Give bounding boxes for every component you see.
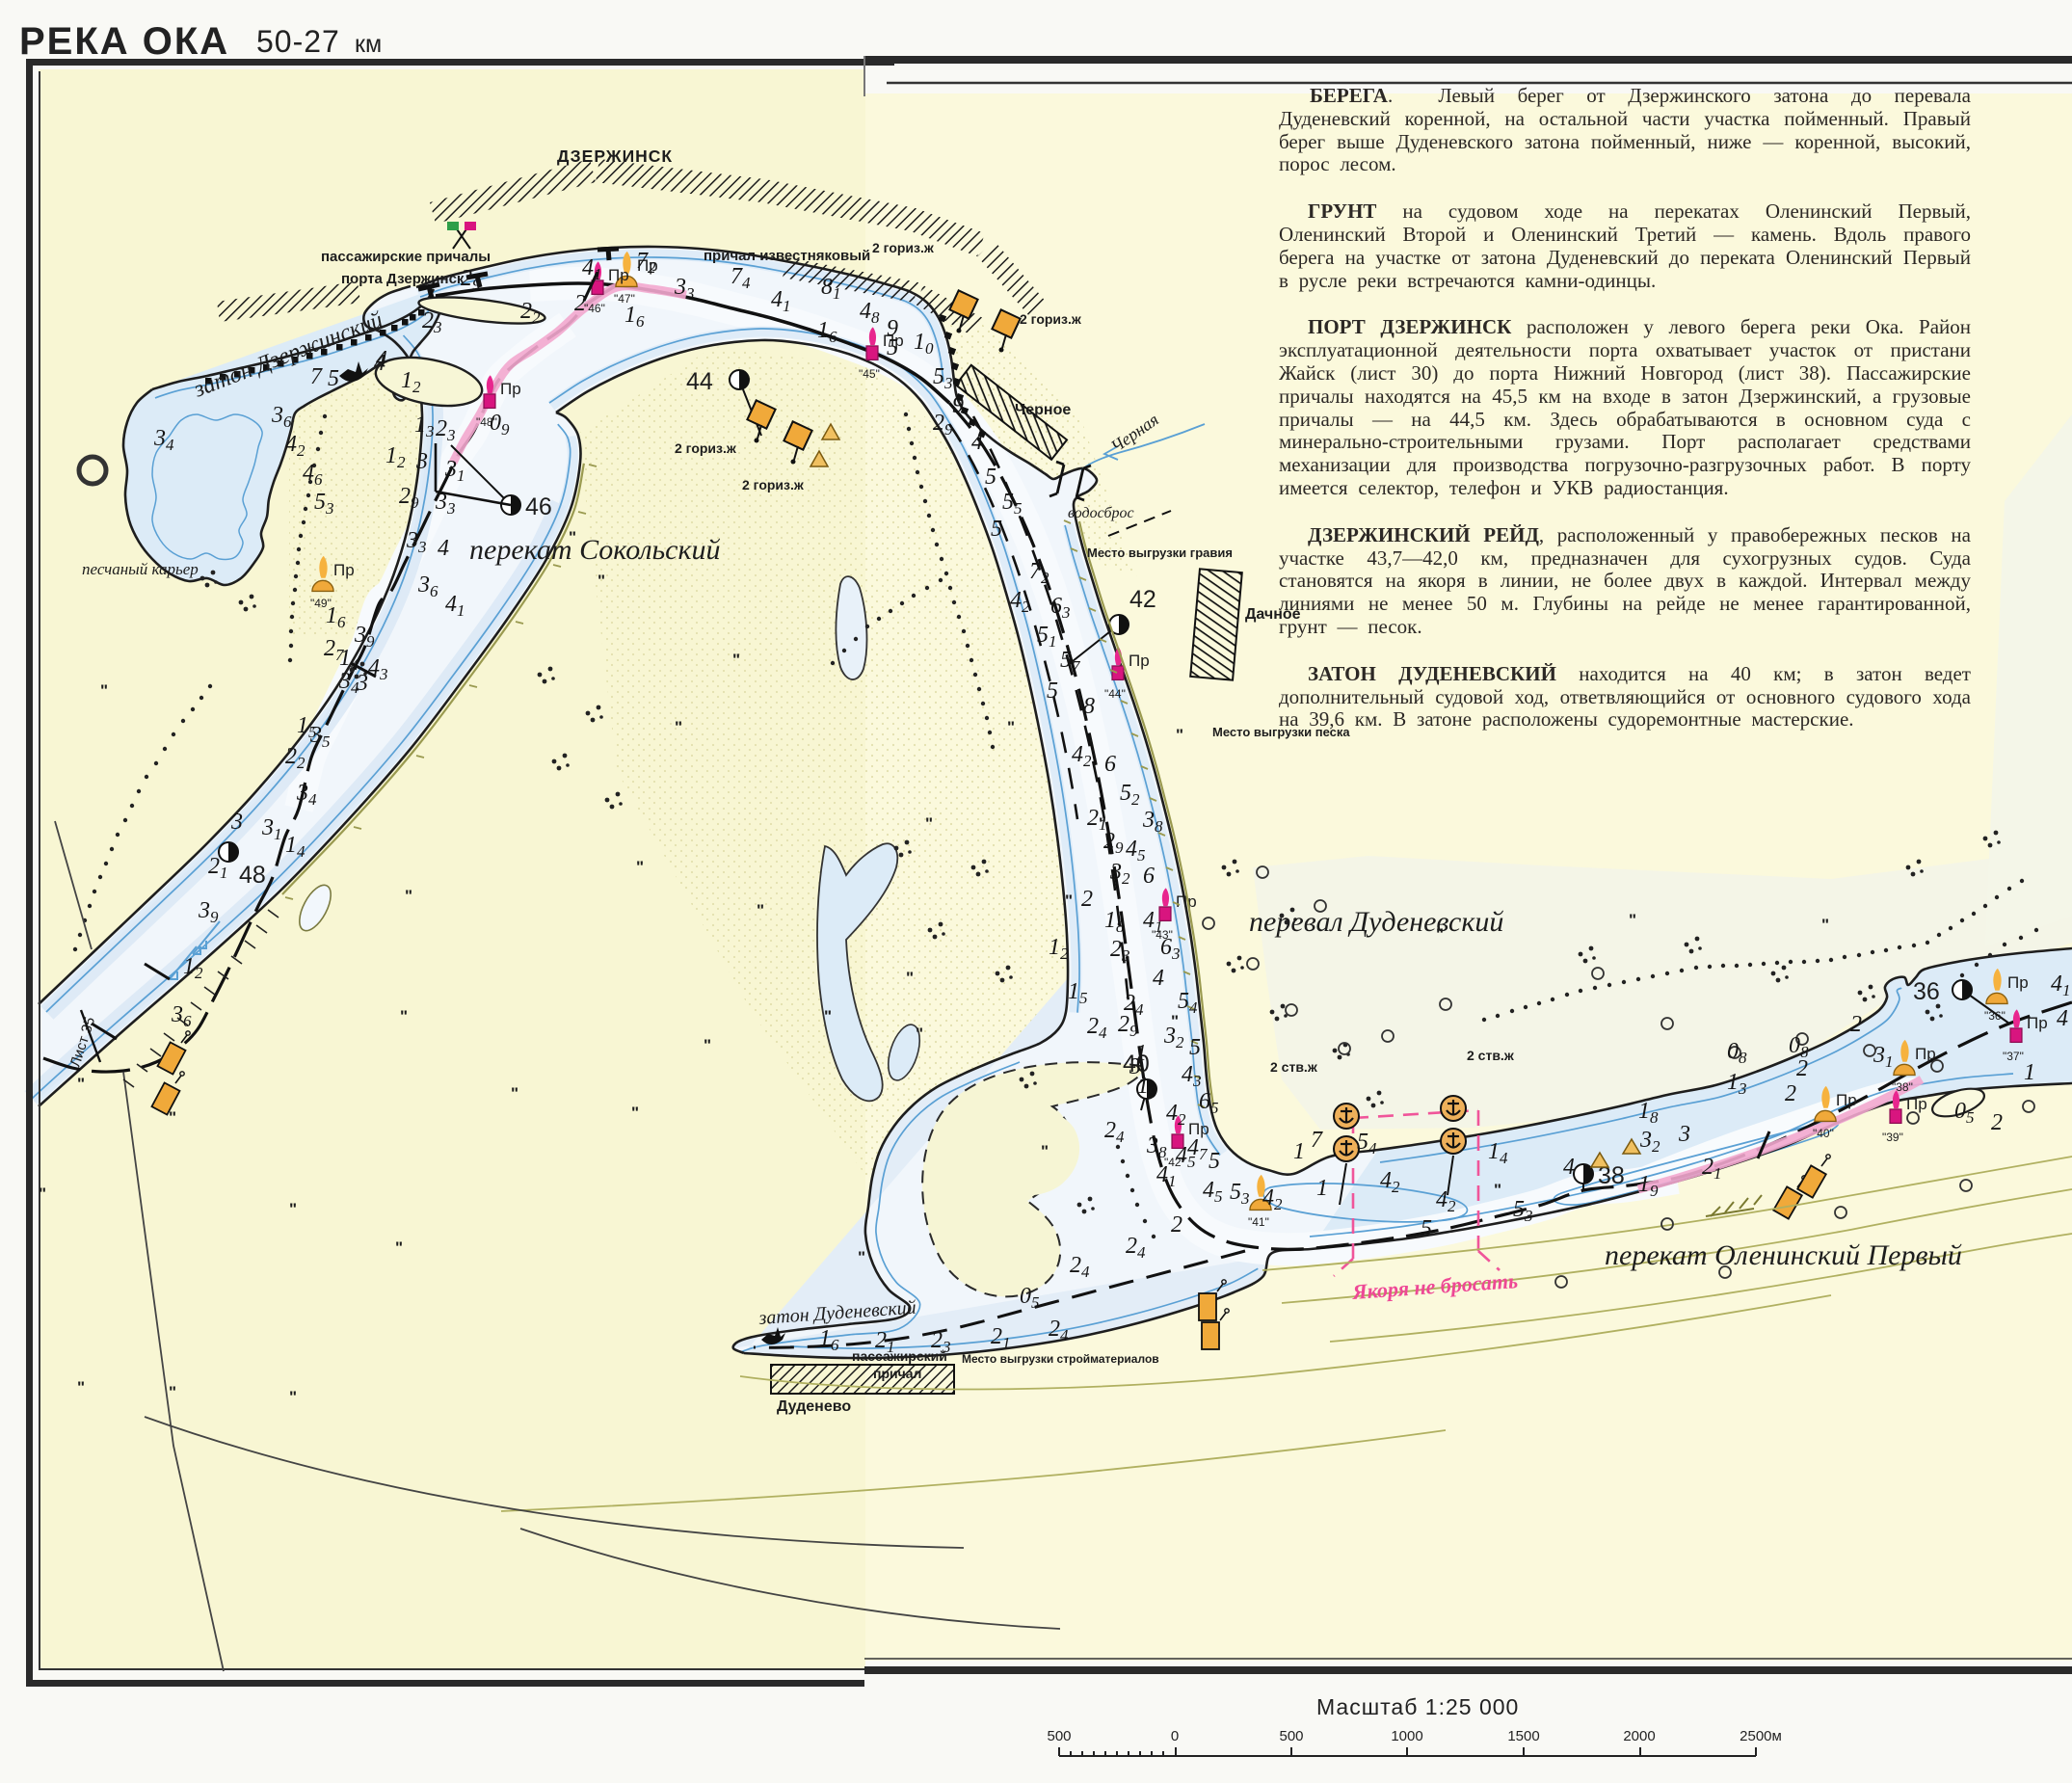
svg-text:": " xyxy=(757,901,764,919)
svg-text:": " xyxy=(1176,726,1183,744)
svg-text:46: 46 xyxy=(525,493,552,520)
svg-text:9: 9 xyxy=(952,393,964,418)
svg-text:": " xyxy=(77,1378,85,1397)
svg-text:12: 12 xyxy=(1049,935,1069,963)
svg-text:порта Дзержинск: порта Дзержинск xyxy=(341,271,465,287)
svg-text:": " xyxy=(732,651,740,669)
svg-text:"46": "46" xyxy=(584,302,605,315)
svg-text:2 гориз.ж: 2 гориз.ж xyxy=(675,440,737,456)
svg-text:Дуденево: Дуденево xyxy=(777,1398,851,1415)
svg-text:44: 44 xyxy=(686,368,713,395)
svg-text:": " xyxy=(916,1025,923,1043)
svg-text:6: 6 xyxy=(1104,752,1116,777)
svg-text:ДЗЕРЖИНСК: ДЗЕРЖИНСК xyxy=(557,146,673,166)
svg-text:13: 13 xyxy=(414,412,435,440)
svg-text:4: 4 xyxy=(971,430,983,455)
svg-text:22: 22 xyxy=(285,744,305,772)
svg-text:": " xyxy=(906,969,914,987)
svg-text:": " xyxy=(169,1383,176,1401)
svg-text:2: 2 xyxy=(1850,1012,1862,1037)
svg-text:08: 08 xyxy=(1789,1033,1809,1061)
svg-text:32: 32 xyxy=(1109,860,1130,888)
svg-text:перекат Оленинский Первый: перекат Оленинский Первый xyxy=(1605,1239,1962,1271)
svg-text:5: 5 xyxy=(985,465,996,490)
svg-text:2 гориз.ж: 2 гориз.ж xyxy=(872,240,935,255)
svg-text:4: 4 xyxy=(376,347,387,372)
svg-text:6: 6 xyxy=(1143,864,1155,889)
svg-text:31: 31 xyxy=(261,815,282,843)
svg-text:09: 09 xyxy=(490,411,510,439)
svg-text:Пр: Пр xyxy=(1129,652,1150,670)
svg-text:": " xyxy=(1629,911,1636,929)
svg-text:22: 22 xyxy=(520,299,541,327)
svg-text:27: 27 xyxy=(324,636,345,664)
svg-text:23: 23 xyxy=(422,308,442,336)
svg-text:24: 24 xyxy=(1049,1317,1069,1344)
svg-text:36: 36 xyxy=(1913,978,1940,1005)
svg-text:": " xyxy=(675,718,682,736)
svg-text:2 ств.ж: 2 ств.ж xyxy=(1270,1059,1318,1075)
svg-text:29: 29 xyxy=(399,484,419,512)
svg-text:39: 39 xyxy=(198,898,219,926)
svg-text:": " xyxy=(1821,916,1829,934)
svg-text:Место выгрузки гравия: Место выгрузки гравия xyxy=(1087,546,1233,560)
svg-text:": " xyxy=(100,681,108,700)
svg-text:1: 1 xyxy=(1316,1176,1328,1201)
svg-text:63: 63 xyxy=(1160,935,1181,963)
svg-text:33: 33 xyxy=(674,275,695,303)
svg-text:54: 54 xyxy=(1357,1130,1377,1158)
svg-text:затон Дзержинский: затон Дзержинский xyxy=(190,307,386,403)
svg-text:8: 8 xyxy=(1083,694,1095,719)
svg-text:5: 5 xyxy=(1189,1035,1201,1060)
svg-text:31: 31 xyxy=(1873,1043,1894,1071)
svg-text:05: 05 xyxy=(1020,1284,1040,1312)
svg-text:7: 7 xyxy=(1311,1128,1323,1153)
svg-text:причал известняковый: причал известняковый xyxy=(704,248,870,264)
svg-text:15: 15 xyxy=(1068,979,1088,1007)
svg-text:2 ств.ж: 2 ств.ж xyxy=(1467,1048,1515,1063)
svg-text:": " xyxy=(395,1238,403,1257)
svg-text:16: 16 xyxy=(624,303,645,331)
svg-text:3: 3 xyxy=(415,449,428,474)
svg-text:51: 51 xyxy=(1037,623,1057,651)
svg-text:38: 38 xyxy=(1142,808,1163,836)
svg-text:": " xyxy=(405,887,412,905)
svg-text:42: 42 xyxy=(1380,1168,1400,1196)
svg-text:34: 34 xyxy=(153,426,174,454)
svg-text:10: 10 xyxy=(914,330,934,358)
svg-text:41: 41 xyxy=(771,287,791,315)
svg-text:Пр: Пр xyxy=(2007,973,2029,992)
svg-text:24: 24 xyxy=(1126,1234,1146,1262)
svg-text:24: 24 xyxy=(1070,1253,1090,1281)
svg-text:Черное: Черное xyxy=(1015,402,1071,418)
svg-text:5: 5 xyxy=(887,335,898,360)
svg-text:16: 16 xyxy=(326,603,346,631)
svg-text:3: 3 xyxy=(230,810,243,835)
svg-text:"37": "37" xyxy=(2003,1050,2024,1063)
svg-text:14: 14 xyxy=(1488,1139,1508,1167)
svg-text:5: 5 xyxy=(1047,679,1058,704)
svg-text:"41": "41" xyxy=(1248,1215,1269,1229)
svg-text:2 гориз.ж: 2 гориз.ж xyxy=(742,477,805,492)
svg-text:Пр: Пр xyxy=(608,266,629,284)
svg-text:15: 15 xyxy=(297,713,317,741)
svg-text:5: 5 xyxy=(328,366,339,391)
svg-text:": " xyxy=(824,1007,832,1025)
svg-text:57: 57 xyxy=(1060,648,1081,676)
svg-text:3: 3 xyxy=(1678,1122,1690,1147)
svg-text:2: 2 xyxy=(1171,1212,1182,1237)
svg-text:42: 42 xyxy=(1166,1101,1186,1129)
svg-text:1: 1 xyxy=(1293,1139,1305,1164)
svg-text:48: 48 xyxy=(239,862,266,889)
svg-text:52: 52 xyxy=(1120,781,1140,809)
svg-text:12: 12 xyxy=(183,954,203,982)
svg-text:"39": "39" xyxy=(1882,1131,1903,1144)
svg-text:": " xyxy=(289,1388,297,1406)
svg-text:21: 21 xyxy=(991,1324,1011,1352)
svg-text:19: 19 xyxy=(1137,1074,1157,1102)
svg-text:53: 53 xyxy=(1230,1180,1250,1208)
svg-text:53: 53 xyxy=(933,364,953,392)
svg-text:29: 29 xyxy=(1103,829,1124,857)
svg-text:63: 63 xyxy=(1050,594,1071,622)
svg-text:45: 45 xyxy=(1126,837,1146,865)
svg-text:24: 24 xyxy=(1104,1118,1125,1146)
svg-text:12: 12 xyxy=(401,368,421,396)
svg-text:": " xyxy=(1494,1181,1501,1199)
svg-text:Якоря не бросать: Якоря не бросать xyxy=(1351,1268,1519,1304)
svg-text:38: 38 xyxy=(1146,1133,1167,1161)
svg-text:1: 1 xyxy=(2024,1060,2035,1085)
svg-text:": " xyxy=(289,1200,297,1218)
svg-text:пассажирский: пассажирский xyxy=(852,1348,947,1364)
svg-text:7: 7 xyxy=(310,364,323,389)
svg-text:": " xyxy=(636,858,644,876)
svg-text:46: 46 xyxy=(303,461,323,489)
svg-text:"45": "45" xyxy=(859,367,880,381)
svg-text:32: 32 xyxy=(1639,1128,1660,1156)
svg-text:5: 5 xyxy=(991,517,1002,542)
svg-text:4: 4 xyxy=(438,536,449,561)
svg-text:54: 54 xyxy=(1178,989,1198,1017)
svg-text:": " xyxy=(704,1036,711,1054)
svg-text:5: 5 xyxy=(1209,1149,1220,1174)
svg-text:перевал Дуденевский: перевал Дуденевский xyxy=(1249,906,1503,938)
svg-text:53: 53 xyxy=(314,490,334,518)
svg-text:65: 65 xyxy=(1199,1089,1219,1117)
svg-text:": " xyxy=(925,814,933,833)
svg-text:"36": "36" xyxy=(1984,1009,2006,1023)
svg-text:песчаный карьер: песчаный карьер xyxy=(82,560,199,578)
svg-text:Пр: Пр xyxy=(333,561,355,579)
svg-text:": " xyxy=(858,1248,865,1266)
svg-text:05: 05 xyxy=(1954,1099,1975,1127)
svg-text:"44": "44" xyxy=(1104,687,1126,701)
svg-text:12: 12 xyxy=(385,443,406,471)
svg-text:Пр: Пр xyxy=(2027,1014,2048,1032)
svg-text:Пр: Пр xyxy=(1836,1091,1857,1109)
svg-text:36: 36 xyxy=(171,1002,192,1030)
svg-text:42: 42 xyxy=(1436,1187,1456,1215)
svg-text:Пр: Пр xyxy=(1915,1045,1936,1063)
svg-text:": " xyxy=(598,572,605,590)
svg-text:1: 1 xyxy=(1135,1041,1147,1066)
svg-text:42: 42 xyxy=(1010,588,1030,616)
svg-text:74: 74 xyxy=(731,264,751,292)
svg-text:4: 4 xyxy=(1563,1155,1575,1180)
svg-text:Пр: Пр xyxy=(1906,1095,1927,1113)
svg-text:08: 08 xyxy=(1727,1039,1747,1067)
svg-text:21: 21 xyxy=(1702,1155,1722,1183)
svg-text:": " xyxy=(400,1007,408,1025)
svg-text:16: 16 xyxy=(819,1326,839,1354)
svg-text:": " xyxy=(77,1075,85,1093)
svg-text:": " xyxy=(169,1108,176,1127)
svg-text:41: 41 xyxy=(445,592,465,620)
svg-text:перекат Сокольский: перекат Сокольский xyxy=(469,534,721,566)
svg-text:"40": "40" xyxy=(1813,1127,1834,1140)
svg-text:23: 23 xyxy=(1110,937,1130,965)
svg-text:41: 41 xyxy=(582,255,602,283)
svg-text:Место выгрузки стройматериалов: Место выгрузки стройматериалов xyxy=(962,1352,1159,1366)
svg-text:2: 2 xyxy=(574,291,586,316)
svg-text:2: 2 xyxy=(1991,1110,2003,1135)
svg-text:причал: причал xyxy=(873,1366,921,1381)
svg-text:29: 29 xyxy=(933,411,953,439)
svg-text:41: 41 xyxy=(2051,971,2071,999)
svg-text:": " xyxy=(39,1184,46,1203)
svg-text:": " xyxy=(631,1104,639,1122)
svg-text:42: 42 xyxy=(1262,1185,1283,1213)
svg-text:33: 33 xyxy=(406,528,427,556)
svg-text:19: 19 xyxy=(1638,1172,1659,1200)
svg-text:пассажирские причалы: пассажирские причалы xyxy=(321,249,491,265)
svg-text:Пр: Пр xyxy=(500,380,521,398)
svg-text:43: 43 xyxy=(368,655,388,683)
svg-text:31: 31 xyxy=(444,457,465,485)
svg-text:55: 55 xyxy=(1002,490,1023,518)
svg-text:24: 24 xyxy=(1087,1014,1107,1042)
svg-text:4: 4 xyxy=(1153,966,1164,991)
svg-text:32: 32 xyxy=(1163,1024,1184,1051)
svg-text:42: 42 xyxy=(1129,586,1156,613)
svg-text:72: 72 xyxy=(1029,559,1049,587)
svg-text:водосброс: водосброс xyxy=(1068,505,1134,521)
svg-text:53: 53 xyxy=(1513,1197,1533,1225)
svg-text:2: 2 xyxy=(1785,1081,1796,1106)
svg-text:"38": "38" xyxy=(1892,1080,1913,1094)
svg-text:": " xyxy=(511,1084,518,1103)
svg-text:34: 34 xyxy=(296,781,317,809)
svg-text:": " xyxy=(1065,891,1073,910)
svg-text:36: 36 xyxy=(417,572,438,600)
svg-text:48: 48 xyxy=(860,299,880,327)
svg-text:затон Дуденевский: затон Дуденевский xyxy=(757,1297,917,1329)
svg-text:": " xyxy=(1007,718,1015,736)
svg-text:14: 14 xyxy=(285,833,305,861)
svg-text:45: 45 xyxy=(1203,1178,1223,1206)
svg-text:42: 42 xyxy=(285,432,305,460)
svg-text:": " xyxy=(1041,1142,1049,1160)
svg-text:13: 13 xyxy=(1727,1070,1747,1098)
svg-text:2: 2 xyxy=(1081,887,1093,912)
svg-text:36: 36 xyxy=(271,403,292,431)
svg-text:72: 72 xyxy=(636,249,656,277)
svg-text:43: 43 xyxy=(1182,1062,1202,1090)
svg-text:16: 16 xyxy=(817,318,837,346)
svg-text:4: 4 xyxy=(2057,1006,2068,1031)
svg-text:5: 5 xyxy=(1421,1216,1432,1241)
svg-text:23: 23 xyxy=(436,416,456,444)
svg-text:2 гориз.ж: 2 гориз.ж xyxy=(1020,311,1082,327)
svg-text:18: 18 xyxy=(1638,1099,1659,1127)
